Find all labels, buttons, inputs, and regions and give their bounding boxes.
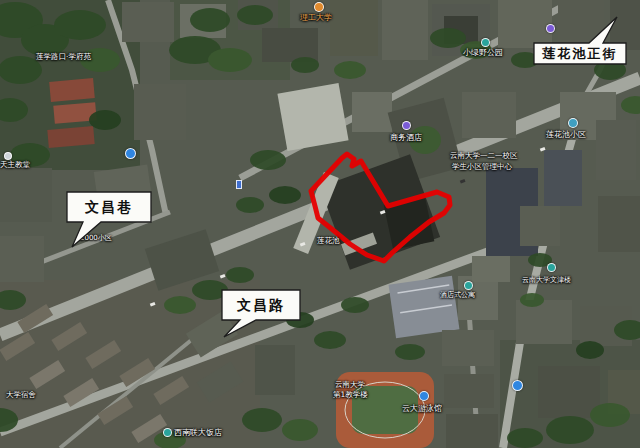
university-icon[interactable] (314, 2, 324, 12)
metro-icon[interactable] (512, 380, 523, 391)
pool-icon[interactable] (419, 391, 429, 401)
signpost-icon[interactable] (236, 180, 242, 189)
restaurant-icon[interactable] (163, 428, 172, 437)
church-icon[interactable] (4, 152, 12, 160)
highlighted-area-outline (0, 0, 640, 448)
poi-icon[interactable] (546, 24, 555, 33)
community-icon[interactable] (568, 118, 578, 128)
transit-icon[interactable] (125, 148, 136, 159)
hotel-icon[interactable] (402, 121, 411, 130)
apartment-icon[interactable] (464, 281, 473, 290)
map-canvas[interactable]: 莲学路口·学府苑 理工大学 小绿野公园 商务酒店 云南大学一二一校区 学生小区管… (0, 0, 640, 448)
park-icon[interactable] (481, 38, 490, 47)
building-icon[interactable] (547, 263, 556, 272)
